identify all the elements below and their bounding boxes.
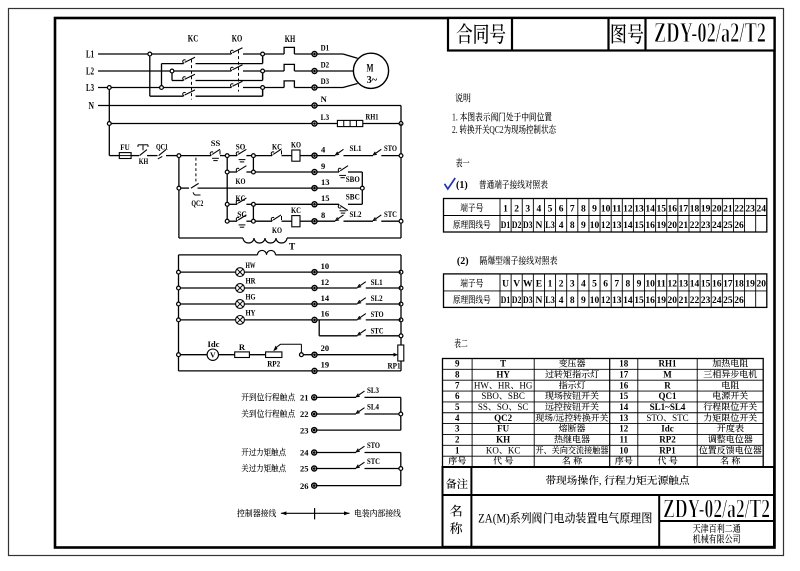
svg-text:15: 15 bbox=[656, 204, 666, 214]
svg-text:D2: D2 bbox=[512, 296, 522, 306]
svg-text:14: 14 bbox=[321, 293, 330, 303]
svg-text:N: N bbox=[535, 221, 542, 231]
svg-text:10: 10 bbox=[590, 221, 600, 231]
svg-text:1: 1 bbox=[548, 280, 553, 290]
svg-text:RP1: RP1 bbox=[388, 361, 401, 371]
svg-text:19: 19 bbox=[656, 221, 666, 231]
svg-text:序号: 序号 bbox=[448, 456, 466, 466]
svg-text:RH1: RH1 bbox=[366, 112, 379, 122]
svg-text:N: N bbox=[89, 101, 95, 112]
svg-text:20: 20 bbox=[756, 280, 766, 290]
svg-text:21: 21 bbox=[679, 296, 689, 306]
svg-text:9: 9 bbox=[581, 296, 586, 306]
svg-text:称: 称 bbox=[450, 521, 464, 536]
svg-text:16: 16 bbox=[321, 309, 330, 319]
svg-text:N: N bbox=[535, 296, 542, 306]
svg-text:合同号: 合同号 bbox=[456, 22, 506, 47]
svg-text:2: 2 bbox=[559, 280, 564, 290]
svg-text:12: 12 bbox=[619, 424, 629, 434]
svg-text:FU: FU bbox=[120, 142, 130, 152]
svg-text:D1: D1 bbox=[501, 296, 511, 306]
svg-text:15: 15 bbox=[634, 221, 644, 231]
svg-text:三相异步电机: 三相异步电机 bbox=[703, 369, 758, 379]
svg-text:SL2: SL2 bbox=[350, 209, 362, 219]
svg-text:15: 15 bbox=[619, 391, 629, 401]
svg-text:18: 18 bbox=[690, 204, 700, 214]
svg-text:11: 11 bbox=[619, 435, 628, 445]
svg-text:16: 16 bbox=[645, 296, 655, 306]
svg-text:QC1: QC1 bbox=[156, 141, 168, 151]
svg-text:E: E bbox=[536, 280, 542, 290]
svg-text:11: 11 bbox=[656, 280, 666, 290]
svg-text:7: 7 bbox=[455, 380, 460, 390]
svg-text:16: 16 bbox=[645, 221, 655, 231]
svg-text:D3: D3 bbox=[321, 76, 330, 86]
svg-text:RP1: RP1 bbox=[659, 445, 676, 455]
svg-text:电源开关: 电源开关 bbox=[712, 391, 748, 401]
svg-text:SL3: SL3 bbox=[367, 385, 379, 395]
svg-text:19: 19 bbox=[745, 280, 755, 290]
svg-text:1: 1 bbox=[503, 204, 508, 214]
svg-text:(1): (1) bbox=[456, 180, 468, 191]
svg-text:KO: KO bbox=[232, 35, 243, 45]
svg-text:开度表: 开度表 bbox=[717, 424, 744, 434]
svg-text:2: 2 bbox=[455, 435, 460, 445]
svg-text:STO: STO bbox=[384, 143, 397, 153]
svg-text:19: 19 bbox=[656, 296, 666, 306]
svg-text:现场按钮开关: 现场按钮开关 bbox=[544, 391, 599, 401]
svg-text:M: M bbox=[367, 63, 374, 75]
svg-text:19: 19 bbox=[321, 359, 330, 369]
svg-text:9: 9 bbox=[455, 359, 460, 369]
svg-text:3: 3 bbox=[570, 280, 575, 290]
svg-text:9: 9 bbox=[637, 280, 642, 290]
svg-text:4: 4 bbox=[559, 221, 564, 231]
svg-text:18: 18 bbox=[734, 280, 744, 290]
svg-text:10: 10 bbox=[645, 280, 655, 290]
svg-text:KH: KH bbox=[285, 35, 296, 45]
svg-text:KO: KO bbox=[291, 139, 301, 149]
svg-text:6: 6 bbox=[603, 280, 608, 290]
svg-text:21: 21 bbox=[723, 204, 733, 214]
svg-text:SL1~SL4: SL1~SL4 bbox=[650, 402, 686, 412]
svg-text:3~: 3~ bbox=[367, 75, 378, 86]
svg-text:R: R bbox=[664, 380, 671, 390]
svg-text:M: M bbox=[663, 369, 672, 379]
svg-text:21: 21 bbox=[300, 393, 309, 403]
svg-text:2. 转换开关QC2为现场控制状态: 2. 转换开关QC2为现场控制状态 bbox=[452, 124, 556, 136]
svg-text:关过力矩触点: 关过力矩触点 bbox=[241, 464, 286, 474]
svg-text:20: 20 bbox=[712, 204, 722, 214]
svg-text:代 号: 代 号 bbox=[493, 456, 513, 466]
svg-text:20: 20 bbox=[668, 296, 678, 306]
svg-text:Idc: Idc bbox=[661, 424, 674, 434]
svg-text:KH: KH bbox=[139, 156, 149, 166]
svg-text:SL1: SL1 bbox=[371, 277, 383, 287]
svg-text:8: 8 bbox=[625, 280, 630, 290]
svg-text:表一: 表一 bbox=[456, 158, 470, 170]
svg-text:SBO、SBC: SBO、SBC bbox=[481, 391, 525, 401]
svg-text:23: 23 bbox=[300, 425, 309, 435]
svg-text:过转矩指示灯: 过转矩指示灯 bbox=[545, 369, 599, 379]
svg-text:21: 21 bbox=[679, 221, 689, 231]
svg-text:L3: L3 bbox=[545, 221, 555, 231]
svg-text:25: 25 bbox=[723, 221, 733, 231]
svg-text:力矩限位开关: 力矩限位开关 bbox=[703, 413, 757, 423]
svg-text:3: 3 bbox=[455, 424, 460, 434]
svg-text:SBC: SBC bbox=[346, 192, 360, 202]
svg-text:位置反馈电位器: 位置反馈电位器 bbox=[698, 445, 762, 455]
svg-text:名 称: 名 称 bbox=[720, 456, 740, 466]
svg-text:序号: 序号 bbox=[615, 456, 633, 466]
svg-text:图号: 图号 bbox=[610, 22, 644, 47]
svg-text:24: 24 bbox=[712, 221, 722, 231]
svg-text:23: 23 bbox=[745, 204, 755, 214]
svg-text:KH: KH bbox=[496, 435, 510, 445]
svg-text:1: 1 bbox=[455, 445, 460, 455]
svg-text:10: 10 bbox=[601, 204, 611, 214]
svg-text:15: 15 bbox=[634, 296, 644, 306]
svg-text:D1: D1 bbox=[321, 42, 330, 52]
svg-text:备注: 备注 bbox=[445, 478, 468, 491]
svg-text:L3: L3 bbox=[545, 296, 555, 306]
svg-text:KC: KC bbox=[291, 205, 301, 215]
svg-text:24: 24 bbox=[712, 296, 722, 306]
svg-text:9: 9 bbox=[581, 221, 586, 231]
svg-text:SS: SS bbox=[211, 138, 221, 148]
svg-text:名: 名 bbox=[450, 504, 463, 519]
svg-text:22: 22 bbox=[734, 204, 744, 214]
svg-text:4: 4 bbox=[455, 413, 460, 423]
svg-text:STO: STO bbox=[367, 440, 380, 450]
svg-text:(2): (2) bbox=[457, 256, 469, 267]
svg-text:RP2: RP2 bbox=[659, 435, 676, 445]
svg-text:KO: KO bbox=[272, 225, 282, 235]
svg-text:16: 16 bbox=[668, 204, 678, 214]
svg-text:N: N bbox=[321, 94, 328, 104]
svg-text:指示灯: 指示灯 bbox=[558, 380, 585, 390]
svg-text:端子号: 端子号 bbox=[460, 278, 483, 289]
svg-text:U: U bbox=[502, 280, 509, 290]
svg-text:ZDY-02/a2/T2: ZDY-02/a2/T2 bbox=[654, 18, 766, 49]
svg-text:T: T bbox=[500, 359, 506, 369]
svg-text:电阻: 电阻 bbox=[721, 380, 740, 390]
svg-text:10: 10 bbox=[321, 261, 330, 271]
svg-text:加热电阻: 加热电阻 bbox=[712, 359, 749, 369]
svg-text:22: 22 bbox=[300, 409, 309, 419]
svg-text:17: 17 bbox=[723, 280, 733, 290]
svg-text:25: 25 bbox=[723, 296, 733, 306]
svg-text:4: 4 bbox=[581, 280, 586, 290]
svg-text:HY: HY bbox=[496, 369, 510, 379]
svg-text:13: 13 bbox=[321, 177, 330, 187]
svg-text:说明: 说明 bbox=[455, 92, 471, 104]
svg-text:T: T bbox=[289, 243, 296, 253]
svg-text:ZA(M)系列阀门电动装置电气原理图: ZA(M)系列阀门电动装置电气原理图 bbox=[478, 512, 652, 526]
svg-text:6: 6 bbox=[559, 204, 564, 214]
svg-text:机械有限公司: 机械有限公司 bbox=[693, 533, 741, 545]
svg-text:7: 7 bbox=[570, 204, 575, 214]
svg-text:SO: SO bbox=[236, 141, 246, 151]
svg-text:18: 18 bbox=[619, 359, 629, 369]
svg-text:HW: HW bbox=[246, 260, 256, 270]
svg-text:QC2: QC2 bbox=[191, 198, 203, 208]
svg-text:SL1: SL1 bbox=[350, 143, 362, 153]
svg-text:表二: 表二 bbox=[454, 338, 468, 350]
svg-text:8: 8 bbox=[321, 210, 325, 220]
svg-text:7: 7 bbox=[614, 280, 619, 290]
svg-text:天津百利二通: 天津百利二通 bbox=[693, 523, 742, 535]
svg-text:D3: D3 bbox=[523, 296, 533, 306]
svg-text:KO、KC: KO、KC bbox=[486, 445, 521, 455]
svg-text:FU: FU bbox=[497, 424, 509, 434]
svg-text:L2: L2 bbox=[86, 67, 94, 78]
svg-text:热继电器: 热继电器 bbox=[554, 435, 590, 445]
svg-text:6: 6 bbox=[455, 391, 460, 401]
svg-text:SL4: SL4 bbox=[367, 402, 380, 412]
svg-text:17: 17 bbox=[679, 204, 689, 214]
svg-text:D1: D1 bbox=[501, 221, 511, 231]
svg-text:控制器接线: 控制器接线 bbox=[236, 508, 277, 518]
svg-text:电装内部接线: 电装内部接线 bbox=[354, 508, 402, 518]
svg-text:16: 16 bbox=[619, 380, 629, 390]
svg-text:13: 13 bbox=[619, 413, 629, 423]
svg-text:4: 4 bbox=[537, 204, 542, 214]
svg-text:10: 10 bbox=[619, 445, 629, 455]
svg-text:L3: L3 bbox=[86, 83, 94, 94]
svg-text:关到位行程触点: 关到位行程触点 bbox=[241, 409, 295, 419]
svg-text:26: 26 bbox=[734, 296, 744, 306]
svg-text:3: 3 bbox=[525, 204, 530, 214]
svg-text:15: 15 bbox=[321, 193, 330, 203]
svg-text:V: V bbox=[513, 280, 520, 290]
svg-text:22: 22 bbox=[690, 221, 700, 231]
svg-text:带现场操作, 行程力矩无源触点: 带现场操作, 行程力矩无源触点 bbox=[546, 474, 691, 487]
svg-text:14: 14 bbox=[645, 204, 655, 214]
svg-text:STC: STC bbox=[367, 456, 380, 466]
svg-text:QC1: QC1 bbox=[659, 391, 678, 401]
svg-text:13: 13 bbox=[679, 280, 689, 290]
svg-text:22: 22 bbox=[690, 296, 700, 306]
svg-text:12: 12 bbox=[321, 277, 330, 287]
svg-text:5: 5 bbox=[548, 204, 553, 214]
svg-text:1. 本图表示阀门处于中间位置: 1. 本图表示阀门处于中间位置 bbox=[452, 112, 552, 124]
svg-text:13: 13 bbox=[612, 296, 622, 306]
svg-text:17: 17 bbox=[619, 369, 629, 379]
svg-text:10: 10 bbox=[590, 296, 600, 306]
svg-text:13: 13 bbox=[634, 204, 644, 214]
svg-text:变压器: 变压器 bbox=[558, 359, 585, 369]
svg-text:20: 20 bbox=[668, 221, 678, 231]
svg-text:V: V bbox=[210, 351, 216, 360]
svg-text:26: 26 bbox=[734, 221, 744, 231]
svg-text:SBO: SBO bbox=[346, 174, 360, 184]
svg-text:开到位行程触点: 开到位行程触点 bbox=[241, 393, 295, 403]
svg-text:隔爆型端子接线对照表: 隔爆型端子接线对照表 bbox=[479, 255, 557, 267]
svg-text:2: 2 bbox=[514, 204, 519, 214]
svg-text:23: 23 bbox=[701, 221, 711, 231]
svg-text:12: 12 bbox=[668, 280, 678, 290]
svg-text:端子号: 端子号 bbox=[460, 203, 483, 214]
svg-text:W: W bbox=[523, 280, 533, 290]
svg-text:11: 11 bbox=[612, 204, 622, 214]
svg-text:STO: STO bbox=[371, 309, 384, 319]
svg-text:19: 19 bbox=[701, 204, 711, 214]
svg-text:12: 12 bbox=[601, 221, 611, 231]
svg-text:12: 12 bbox=[601, 296, 611, 306]
svg-text:QC2: QC2 bbox=[494, 413, 513, 423]
svg-text:ZDY-02/a2/T2: ZDY-02/a2/T2 bbox=[663, 493, 770, 523]
svg-text:L3: L3 bbox=[321, 112, 330, 122]
svg-text:14: 14 bbox=[623, 221, 633, 231]
svg-text:14: 14 bbox=[619, 402, 629, 412]
svg-text:Idc: Idc bbox=[208, 339, 220, 349]
svg-text:24: 24 bbox=[756, 204, 766, 214]
svg-text:14: 14 bbox=[623, 296, 633, 306]
svg-text:SL2: SL2 bbox=[371, 293, 383, 303]
svg-text:调整电位器: 调整电位器 bbox=[708, 435, 753, 445]
svg-text:开、关向交流接触器: 开、关向交流接触器 bbox=[535, 445, 608, 455]
svg-text:现场/远控转换开关: 现场/远控转换开关 bbox=[534, 413, 608, 423]
svg-text:8: 8 bbox=[455, 369, 460, 379]
svg-text:KO: KO bbox=[236, 176, 246, 186]
svg-text:5: 5 bbox=[455, 402, 460, 412]
svg-text:HR: HR bbox=[246, 276, 257, 286]
svg-text:R: R bbox=[239, 342, 246, 352]
svg-text:8: 8 bbox=[570, 296, 575, 306]
svg-text:25: 25 bbox=[300, 464, 309, 474]
svg-text:HG: HG bbox=[246, 292, 256, 302]
svg-text:原理图线号: 原理图线号 bbox=[452, 219, 490, 231]
svg-text:STC: STC bbox=[371, 325, 384, 335]
svg-text:13: 13 bbox=[612, 221, 622, 231]
svg-text:4: 4 bbox=[559, 296, 564, 306]
svg-text:14: 14 bbox=[690, 280, 700, 290]
svg-text:8: 8 bbox=[581, 204, 586, 214]
svg-text:9: 9 bbox=[592, 204, 597, 214]
svg-text:5: 5 bbox=[592, 280, 597, 290]
svg-text:8: 8 bbox=[570, 221, 575, 231]
svg-text:12: 12 bbox=[623, 204, 633, 214]
svg-text:远控按钮开关: 远控按钮开关 bbox=[545, 402, 599, 412]
svg-text:20: 20 bbox=[321, 343, 330, 353]
svg-text:RP2: RP2 bbox=[267, 358, 280, 368]
svg-text:代 号: 代 号 bbox=[657, 456, 677, 466]
svg-text:9: 9 bbox=[321, 161, 325, 171]
svg-text:熔断器: 熔断器 bbox=[558, 424, 585, 434]
svg-text:D2: D2 bbox=[321, 59, 330, 69]
svg-text:D2: D2 bbox=[512, 221, 522, 231]
svg-text:KC: KC bbox=[188, 35, 199, 45]
svg-text:开过力矩触点: 开过力矩触点 bbox=[241, 448, 286, 458]
svg-text:STO、STC: STO、STC bbox=[646, 413, 688, 423]
svg-text:24: 24 bbox=[300, 448, 309, 458]
svg-text:D3: D3 bbox=[523, 221, 533, 231]
svg-text:HW、HR、HG: HW、HR、HG bbox=[474, 380, 533, 390]
svg-text:普通端子接线对照表: 普通端子接线对照表 bbox=[479, 179, 548, 191]
svg-text:23: 23 bbox=[701, 296, 711, 306]
svg-text:名 称: 名 称 bbox=[562, 456, 582, 466]
svg-text:L1: L1 bbox=[86, 50, 94, 61]
svg-text:26: 26 bbox=[300, 481, 309, 491]
svg-text:STC: STC bbox=[384, 209, 397, 219]
svg-text:原理图线号: 原理图线号 bbox=[452, 294, 490, 306]
svg-text:15: 15 bbox=[701, 280, 711, 290]
svg-text:SS、SO、SC: SS、SO、SC bbox=[478, 402, 529, 412]
svg-text:16: 16 bbox=[712, 280, 722, 290]
svg-text:HY: HY bbox=[246, 308, 256, 318]
svg-text:RH1: RH1 bbox=[659, 359, 678, 369]
svg-text:行程限位开关: 行程限位开关 bbox=[703, 402, 757, 412]
